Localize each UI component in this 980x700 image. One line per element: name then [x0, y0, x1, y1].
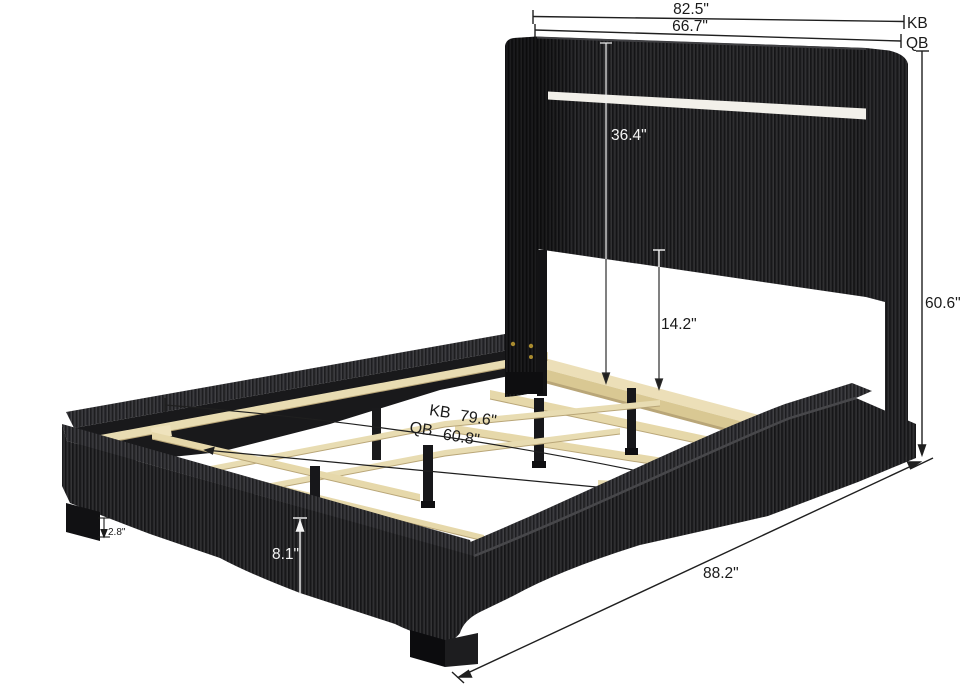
- svg-text:QB: QB: [408, 419, 433, 439]
- svg-text:2.8": 2.8": [108, 527, 126, 538]
- svg-text:14.2": 14.2": [661, 316, 697, 333]
- svg-text:66.7": 66.7": [672, 18, 708, 35]
- svg-text:82.5": 82.5": [673, 1, 709, 18]
- svg-text:88.2": 88.2": [703, 565, 739, 582]
- svg-text:8.1": 8.1": [272, 546, 299, 563]
- svg-text:QB: QB: [906, 35, 928, 52]
- svg-text:KB: KB: [428, 402, 452, 422]
- svg-text:60.6": 60.6": [925, 295, 961, 312]
- svg-text:KB: KB: [907, 15, 928, 32]
- svg-text:36.4": 36.4": [611, 127, 647, 144]
